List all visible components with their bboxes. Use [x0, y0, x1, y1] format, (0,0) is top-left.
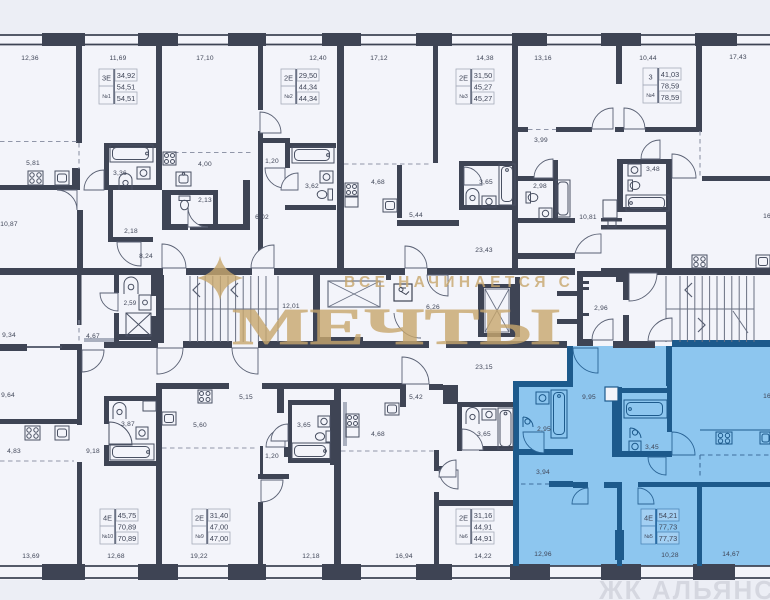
svg-text:ЖК АЛЬЯНС: ЖК АЛЬЯНС: [598, 575, 770, 600]
svg-text:9,18: 9,18: [86, 448, 100, 455]
svg-text:10,81: 10,81: [579, 214, 597, 221]
svg-text:3,94: 3,94: [536, 469, 550, 476]
svg-text:4,68: 4,68: [371, 431, 385, 438]
svg-text:14,38: 14,38: [476, 55, 494, 62]
svg-text:2,95: 2,95: [537, 426, 551, 433]
svg-text:78,59: 78,59: [661, 93, 680, 102]
svg-text:6,26: 6,26: [426, 304, 440, 311]
svg-text:3Е: 3Е: [102, 74, 111, 83]
svg-text:12,40: 12,40: [309, 55, 327, 62]
svg-text:9,34: 9,34: [2, 332, 16, 339]
svg-text:12,18: 12,18: [302, 553, 320, 560]
svg-text:44,91: 44,91: [474, 534, 493, 543]
svg-text:44,91: 44,91: [474, 523, 493, 532]
svg-text:47,00: 47,00: [210, 523, 229, 532]
svg-text:3,45: 3,45: [645, 444, 659, 451]
svg-text:10,28: 10,28: [661, 552, 679, 559]
svg-text:2Е: 2Е: [284, 74, 293, 83]
svg-text:41,03: 41,03: [661, 70, 680, 79]
svg-text:2Е: 2Е: [195, 514, 204, 523]
svg-text:45,27: 45,27: [474, 94, 493, 103]
svg-text:45,27: 45,27: [474, 83, 493, 92]
svg-text:5,44: 5,44: [409, 212, 423, 219]
svg-text:14,67: 14,67: [722, 551, 740, 558]
svg-text:ВСЕ НАЧИНАЕТСЯ С: ВСЕ НАЧИНАЕТСЯ С: [344, 274, 574, 291]
svg-text:3,65: 3,65: [297, 422, 311, 429]
svg-text:47,00: 47,00: [210, 534, 229, 543]
svg-text:12,36: 12,36: [21, 55, 39, 62]
svg-text:3,62: 3,62: [305, 183, 319, 190]
svg-text:4Е: 4Е: [644, 514, 653, 523]
svg-text:№5: №5: [644, 534, 653, 540]
svg-text:№9: №9: [195, 534, 204, 540]
svg-text:23,43: 23,43: [475, 247, 493, 254]
svg-text:54,51: 54,51: [117, 94, 136, 103]
svg-text:2,96: 2,96: [594, 305, 608, 312]
svg-text:34,92: 34,92: [117, 71, 136, 80]
svg-text:31,50: 31,50: [474, 71, 493, 80]
svg-text:16,94: 16,94: [395, 553, 413, 560]
svg-text:31,16: 31,16: [474, 511, 493, 520]
svg-text:19,22: 19,22: [190, 553, 208, 560]
svg-text:4,68: 4,68: [371, 179, 385, 186]
svg-text:6,02: 6,02: [255, 214, 269, 221]
svg-text:3,65: 3,65: [479, 179, 493, 186]
svg-text:23,15: 23,15: [475, 364, 493, 371]
svg-text:8,24: 8,24: [139, 253, 153, 260]
svg-text:2,59: 2,59: [124, 300, 137, 307]
svg-text:17,12: 17,12: [370, 55, 388, 62]
svg-text:10,87: 10,87: [0, 221, 18, 228]
svg-text:№6: №6: [459, 534, 468, 540]
svg-text:10,44: 10,44: [639, 55, 657, 62]
svg-text:70,89: 70,89: [118, 523, 137, 532]
svg-text:2,18: 2,18: [124, 228, 138, 235]
svg-text:4Е: 4Е: [103, 514, 112, 523]
svg-text:МЕЧТЫ: МЕЧТЫ: [232, 299, 560, 356]
svg-text:5,15: 5,15: [239, 394, 253, 401]
svg-text:2Е: 2Е: [459, 74, 468, 83]
svg-text:1,20: 1,20: [265, 453, 279, 460]
svg-text:5,81: 5,81: [26, 160, 40, 167]
svg-text:77,73: 77,73: [659, 534, 678, 543]
svg-text:4,67: 4,67: [86, 333, 100, 340]
svg-text:11,69: 11,69: [109, 55, 126, 62]
svg-text:17,10: 17,10: [196, 55, 214, 62]
svg-text:2,13: 2,13: [198, 197, 212, 204]
svg-text:2Е: 2Е: [459, 514, 468, 523]
svg-text:54,21: 54,21: [659, 511, 678, 520]
svg-text:16,: 16,: [763, 393, 770, 400]
svg-text:17,43: 17,43: [729, 54, 747, 61]
svg-text:9,95: 9,95: [582, 394, 596, 401]
svg-text:№2: №2: [284, 94, 293, 100]
svg-text:12,01: 12,01: [282, 303, 300, 310]
svg-text:№1: №1: [102, 94, 111, 100]
svg-text:13,16: 13,16: [534, 55, 552, 62]
svg-text:12,68: 12,68: [107, 553, 125, 560]
svg-text:1,20: 1,20: [265, 158, 279, 165]
svg-text:3,65: 3,65: [477, 431, 491, 438]
svg-text:3,87: 3,87: [121, 421, 135, 428]
svg-text:2,98: 2,98: [533, 183, 547, 190]
svg-text:31,40: 31,40: [210, 511, 229, 520]
svg-text:5,42: 5,42: [409, 394, 423, 401]
svg-text:3: 3: [648, 73, 652, 82]
svg-text:4,00: 4,00: [198, 161, 212, 168]
svg-text:№3: №3: [459, 94, 468, 100]
svg-text:14,22: 14,22: [474, 553, 492, 560]
svg-text:44,34: 44,34: [299, 83, 318, 92]
svg-text:77,73: 77,73: [659, 523, 678, 532]
svg-text:70,89: 70,89: [118, 534, 137, 543]
svg-text:5,60: 5,60: [193, 422, 207, 429]
svg-text:29,50: 29,50: [299, 71, 318, 80]
svg-text:№10: №10: [102, 534, 113, 540]
svg-text:9,64: 9,64: [1, 392, 15, 399]
svg-text:16,: 16,: [763, 213, 770, 220]
svg-text:13,69: 13,69: [22, 553, 40, 560]
svg-text:3,36: 3,36: [113, 170, 127, 177]
svg-text:78,59: 78,59: [661, 82, 680, 91]
svg-text:3,48: 3,48: [646, 166, 660, 173]
svg-text:3,99: 3,99: [534, 137, 548, 144]
svg-text:№4: №4: [646, 93, 655, 99]
svg-text:45,75: 45,75: [118, 511, 137, 520]
svg-text:12,96: 12,96: [534, 551, 552, 558]
svg-text:44,34: 44,34: [299, 94, 318, 103]
svg-text:4,83: 4,83: [7, 448, 21, 455]
svg-text:54,51: 54,51: [117, 83, 136, 92]
